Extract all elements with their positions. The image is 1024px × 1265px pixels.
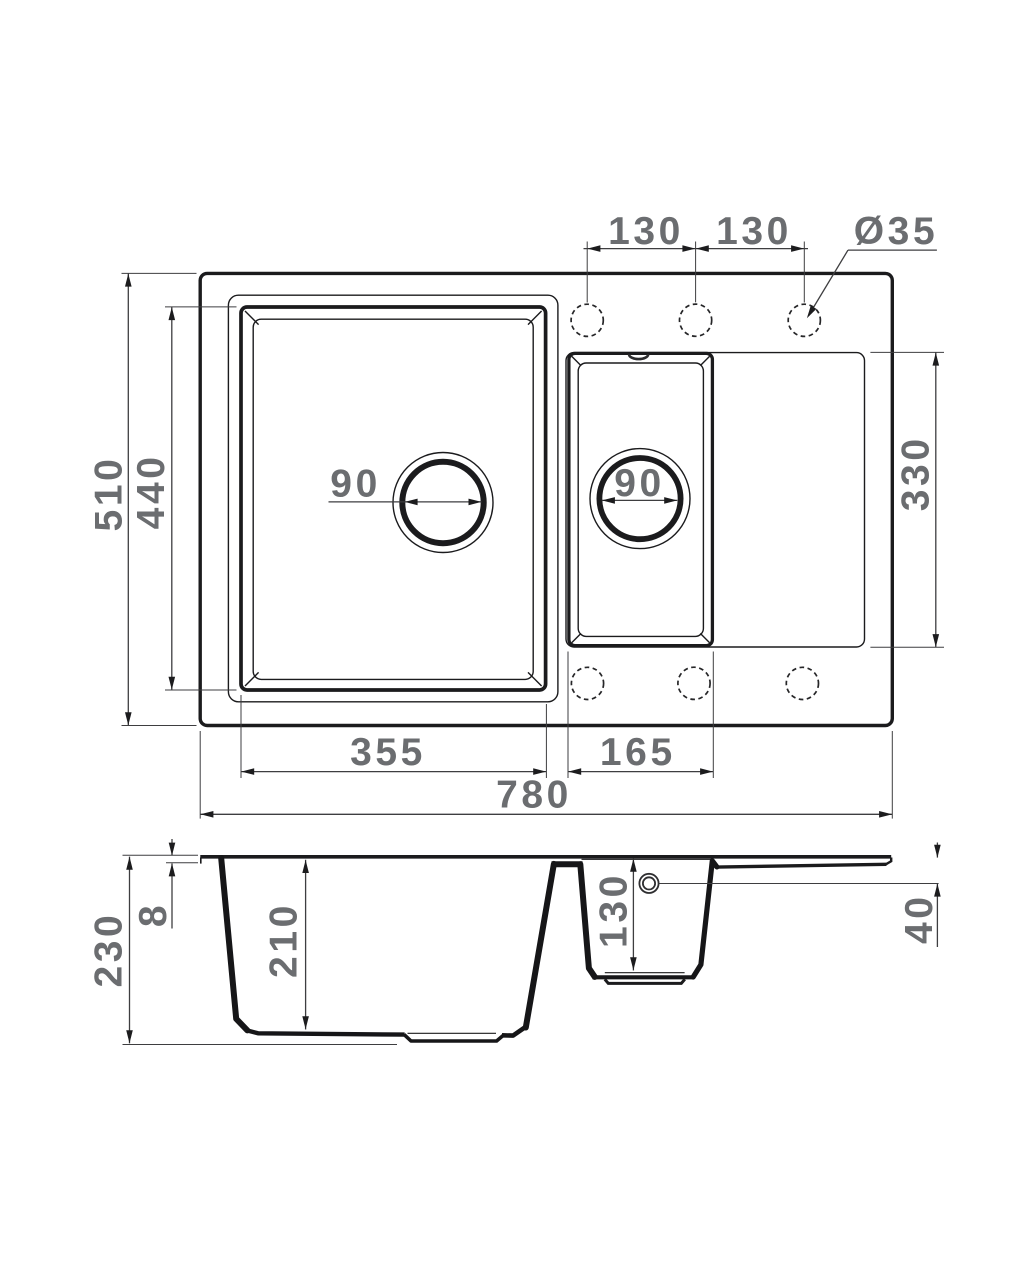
- svg-text:130: 130: [608, 210, 684, 253]
- svg-text:130: 130: [593, 872, 636, 948]
- svg-text:210: 210: [263, 902, 306, 978]
- svg-text:8: 8: [132, 902, 175, 927]
- svg-text:Ø35: Ø35: [854, 210, 939, 253]
- svg-text:510: 510: [87, 456, 130, 532]
- svg-text:90: 90: [614, 462, 665, 505]
- svg-text:40: 40: [898, 893, 941, 944]
- svg-text:130: 130: [716, 210, 792, 253]
- svg-text:90: 90: [330, 463, 381, 506]
- svg-text:355: 355: [350, 731, 426, 774]
- svg-text:780: 780: [496, 773, 572, 816]
- svg-text:230: 230: [88, 912, 131, 988]
- svg-text:440: 440: [130, 453, 173, 529]
- svg-text:330: 330: [894, 435, 937, 511]
- svg-text:165: 165: [600, 731, 676, 774]
